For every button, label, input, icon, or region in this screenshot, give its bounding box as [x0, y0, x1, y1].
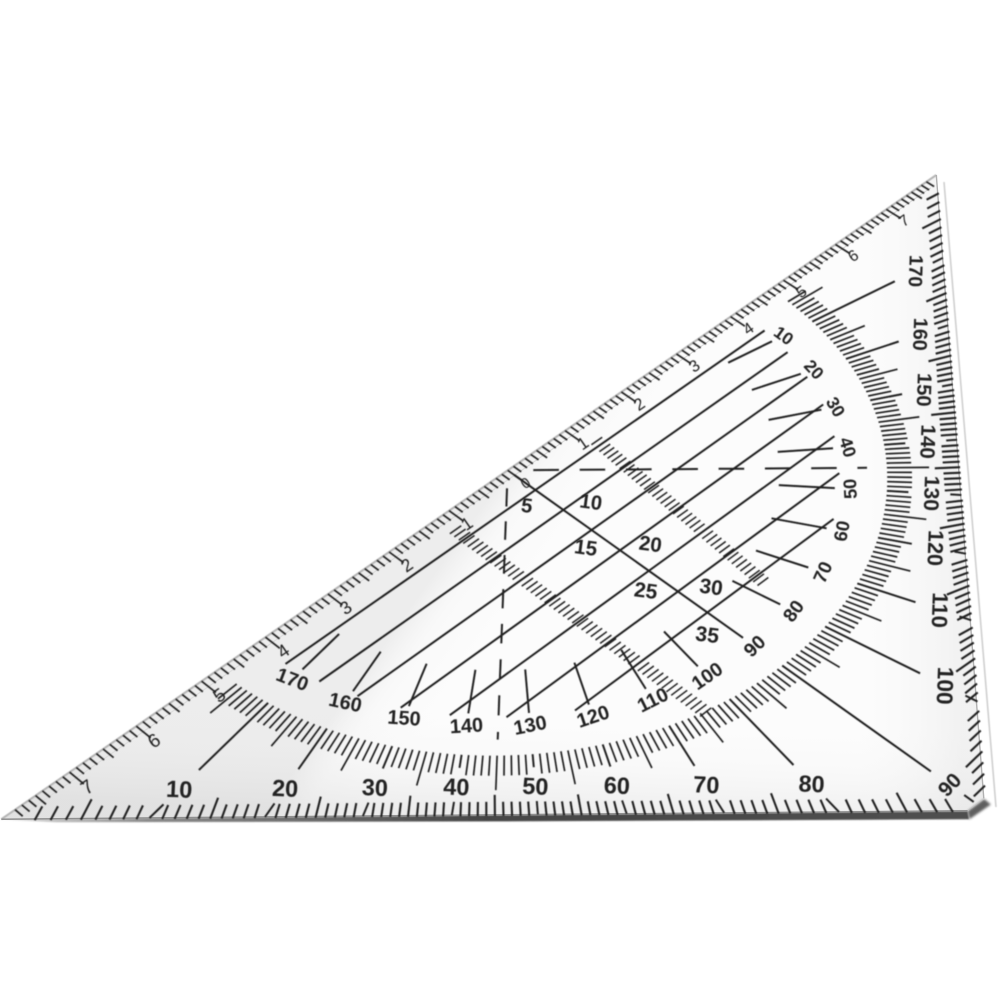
- svg-text:150: 150: [912, 373, 935, 407]
- svg-text:80: 80: [798, 770, 825, 797]
- svg-text:40: 40: [443, 773, 470, 800]
- svg-text:60: 60: [829, 519, 854, 543]
- svg-text:10: 10: [165, 777, 192, 804]
- svg-text:15: 15: [573, 535, 599, 561]
- svg-text:170: 170: [904, 255, 926, 288]
- svg-text:20: 20: [271, 775, 298, 802]
- svg-text:140: 140: [915, 424, 939, 459]
- svg-text:60: 60: [603, 772, 630, 799]
- svg-text:30: 30: [361, 774, 388, 801]
- svg-text:25: 25: [633, 578, 659, 604]
- svg-text:35: 35: [694, 622, 721, 648]
- svg-text:110: 110: [927, 592, 953, 628]
- svg-text:50: 50: [840, 478, 861, 499]
- svg-text:30: 30: [698, 575, 724, 601]
- svg-text:70: 70: [693, 771, 720, 798]
- svg-text:160: 160: [908, 317, 931, 351]
- svg-text:20: 20: [638, 532, 664, 558]
- svg-text:130: 130: [919, 475, 943, 511]
- svg-text:50: 50: [522, 773, 549, 800]
- svg-text:100: 100: [932, 666, 958, 705]
- svg-text:10: 10: [578, 490, 603, 515]
- svg-text:120: 120: [922, 530, 947, 567]
- svg-text:140: 140: [449, 714, 484, 738]
- svg-text:150: 150: [387, 707, 422, 731]
